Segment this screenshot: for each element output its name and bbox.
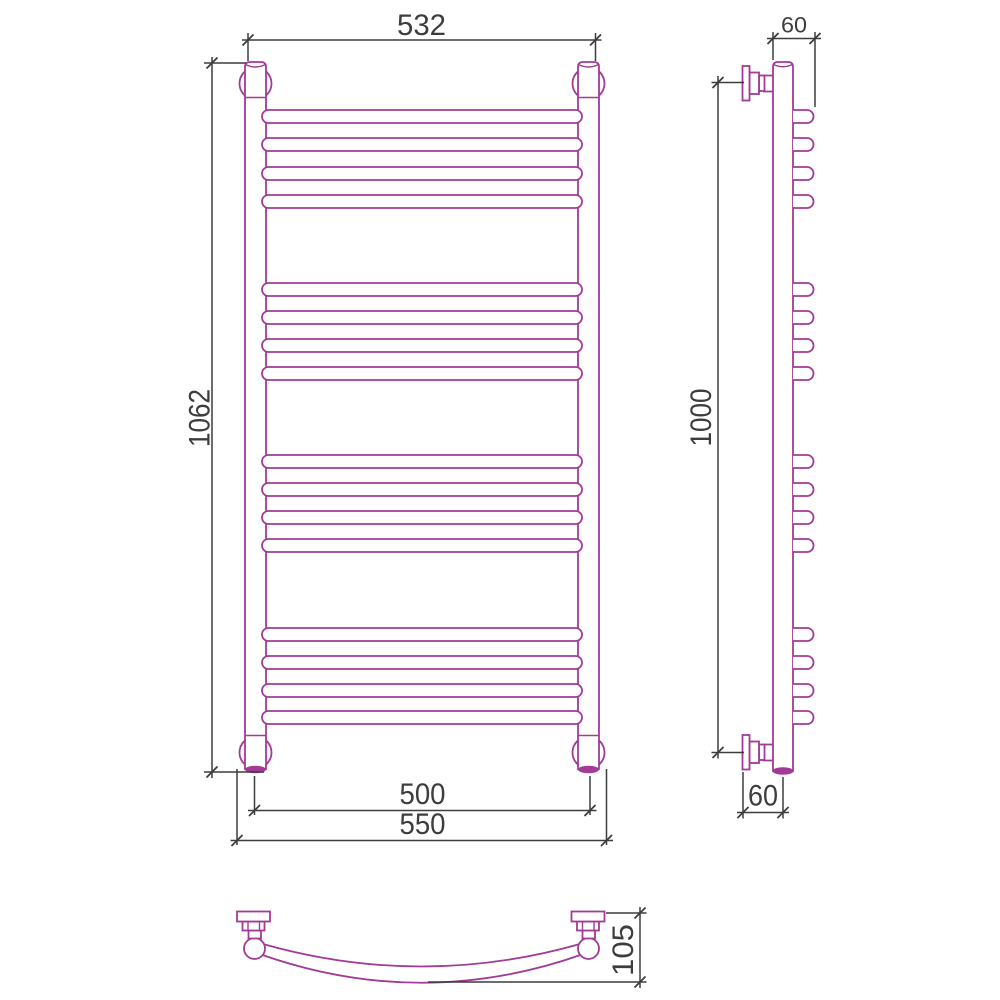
front-rung	[262, 367, 582, 380]
front-rung	[262, 684, 582, 697]
plan-rail-inner-curve	[263, 944, 580, 967]
side-rung-tab	[793, 656, 814, 669]
side-rung-tab	[793, 511, 814, 524]
plan-right-post-circle	[578, 938, 599, 959]
plan-view	[237, 912, 605, 983]
plan-rail-outer-curve	[261, 955, 582, 983]
side-rung-tab	[793, 167, 814, 180]
side-rung-tab	[793, 339, 814, 352]
dimension-side-height: 1000	[685, 76, 744, 759]
front-rungs-group	[262, 110, 582, 724]
dimension-side-depth-bottom-label: 60	[748, 780, 778, 813]
side-rung-tab	[793, 684, 814, 697]
side-rung-tab	[793, 367, 814, 380]
side-rung-tab	[793, 711, 814, 724]
plan-left-bracket-stem	[249, 931, 262, 939]
dimension-plan-depth-label: 105	[607, 924, 640, 976]
dimension-front-width-top: 532	[242, 9, 602, 61]
front-view	[240, 62, 605, 773]
side-rung-tab	[793, 283, 814, 296]
dimensions: 532 1062 500 550	[184, 9, 822, 988]
front-rung	[262, 110, 582, 123]
front-rung	[262, 628, 582, 641]
plan-right-bracket-nut	[577, 922, 599, 931]
plan-right-bracket-stem	[583, 931, 596, 939]
dimension-side-depth-top-label: 60	[781, 13, 807, 38]
front-rung	[262, 711, 582, 724]
front-rung	[262, 167, 582, 180]
front-rung	[262, 339, 582, 352]
side-view	[743, 62, 814, 774]
dimension-side-depth-bottom: 60	[737, 772, 789, 819]
front-rung	[262, 511, 582, 524]
drawing-svg: 532 1062 500 550	[0, 0, 1000, 1000]
side-bottom-bracket-nut	[750, 742, 760, 764]
side-tube-bottom-end	[773, 768, 793, 774]
dimension-front-width-top-label: 532	[397, 9, 446, 42]
technical-drawing: 532 1062 500 550	[0, 0, 1000, 1000]
front-rung	[262, 311, 582, 324]
side-rung-tab	[793, 311, 814, 324]
front-rung	[262, 539, 582, 552]
dimension-front-overall-width-label: 550	[400, 808, 446, 841]
plan-left-bracket-nut	[243, 922, 265, 931]
front-right-foot	[579, 766, 599, 772]
dimension-side-height-label: 1000	[685, 389, 718, 447]
front-rung	[262, 283, 582, 296]
side-rung-tab	[793, 110, 814, 123]
side-top-bracket-nut	[750, 73, 760, 95]
plan-left-bracket-flange	[237, 912, 270, 922]
dimension-front-height-label: 1062	[184, 389, 217, 447]
side-rungs-group	[793, 110, 814, 724]
side-rung-tab	[793, 539, 814, 552]
side-rung-tab	[793, 455, 814, 468]
front-rung	[262, 455, 582, 468]
front-rung	[262, 138, 582, 151]
side-rung-tab	[793, 138, 814, 151]
dimension-plan-depth: 105	[428, 907, 647, 988]
plan-left-post-circle	[244, 938, 265, 959]
front-rung	[262, 656, 582, 669]
front-rung	[262, 195, 582, 208]
side-rung-tab	[793, 195, 813, 208]
side-rung-tab	[793, 628, 814, 641]
dimension-front-rail-width-label: 500	[400, 778, 446, 811]
side-rung-tab	[793, 483, 814, 496]
front-rung	[262, 483, 582, 496]
side-tube	[773, 62, 793, 771]
plan-right-bracket-flange	[572, 912, 605, 922]
